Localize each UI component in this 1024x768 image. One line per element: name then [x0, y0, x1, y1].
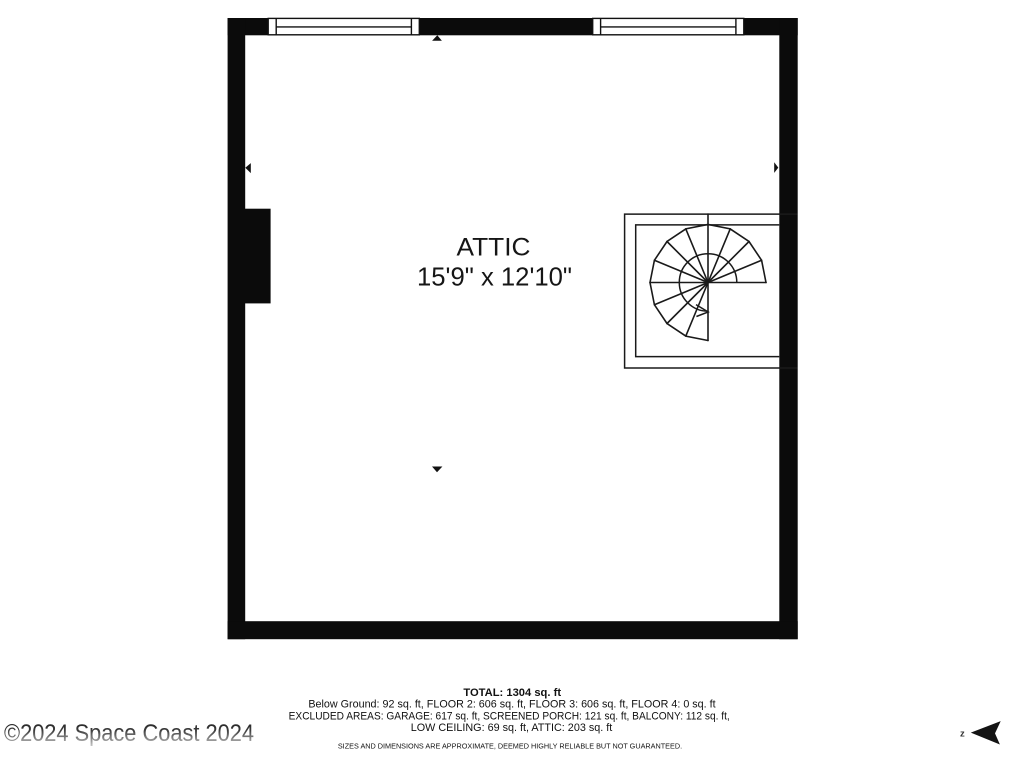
svg-text:z: z: [960, 729, 965, 740]
svg-text:15'9" x 12'10": 15'9" x 12'10": [417, 262, 572, 292]
svg-text:TOTAL: 1304 sq. ft: TOTAL: 1304 sq. ft: [463, 687, 561, 699]
svg-text:©2024 Space Coast 2024: ©2024 Space Coast 2024: [4, 720, 254, 747]
svg-text:Below Ground: 92 sq. ft, FLOOR: Below Ground: 92 sq. ft, FLOOR 2: 606 sq…: [308, 699, 715, 711]
svg-text:LOW CEILING: 69 sq. ft, ATTIC:: LOW CEILING: 69 sq. ft, ATTIC: 203 sq. f…: [411, 722, 613, 734]
svg-text:EXCLUDED AREAS: GARAGE: 617 sq: EXCLUDED AREAS: GARAGE: 617 sq. ft, SCRE…: [289, 710, 730, 722]
svg-text:SIZES AND DIMENSIONS ARE APPRO: SIZES AND DIMENSIONS ARE APPROXIMATE, DE…: [338, 741, 682, 750]
svg-text:ATTIC: ATTIC: [457, 233, 531, 261]
